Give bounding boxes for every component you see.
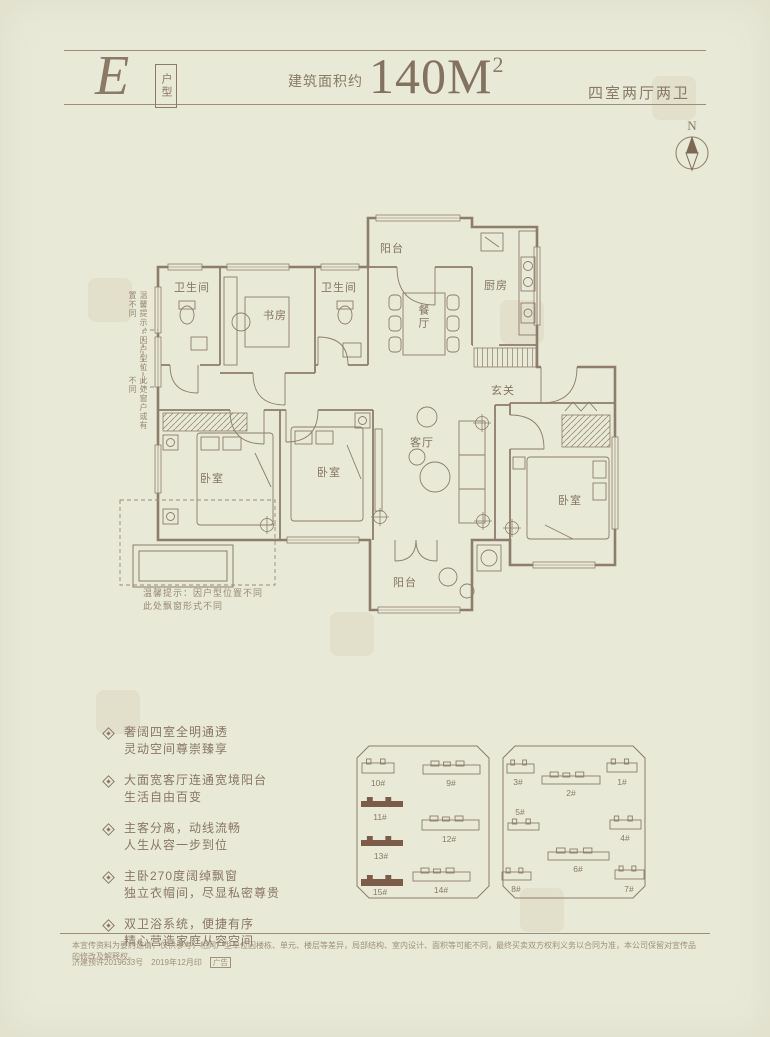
- room-label-balcony-top: 阳台: [380, 240, 404, 256]
- north-compass: N: [668, 116, 716, 181]
- ad-label-box: 广告: [210, 957, 231, 968]
- siteplan-building-8: 8#: [502, 868, 531, 894]
- area-group: 建筑面积约 140M 2: [288, 52, 503, 100]
- room-label-study: 书房: [263, 307, 287, 323]
- siteplan-building-label: 1#: [617, 777, 627, 787]
- corner-note-line2: 此处飘窗形式不同: [143, 600, 263, 613]
- diamond-bullet-icon: [103, 776, 112, 785]
- siteplan-building-11: 11#: [361, 797, 403, 822]
- footer-rule: [60, 933, 710, 934]
- feature-line: 灵动空间尊崇臻享: [124, 741, 228, 758]
- siteplan-building-label: 8#: [511, 884, 521, 894]
- siteplan-building-6: 6#: [548, 848, 609, 874]
- area-prefix: 建筑面积约: [288, 71, 363, 91]
- side-note-col2: 此处窗户或有不同: [127, 376, 149, 431]
- siteplan-building-7: 7#: [615, 866, 644, 894]
- siteplan-building-14: 14#: [413, 868, 470, 895]
- diamond-bullet-icon: [103, 920, 112, 929]
- floorplan-poster-page: E 户型 建筑面积约 140M 2 四室两厅两卫 N: [0, 0, 770, 1037]
- siteplan-building-label: 9#: [446, 778, 456, 788]
- room-label-bed1: 卧室: [200, 470, 224, 486]
- area-value: 140M: [369, 52, 492, 100]
- siteplan-west-drawing: 10#9#11#12#13#14#15#: [353, 742, 493, 902]
- room-label-dining: 餐厅: [415, 304, 431, 330]
- siteplan-building-12: 12#: [422, 816, 479, 844]
- feature-item: 奢阔四室全明通透 灵动空间尊崇臻享: [103, 724, 343, 758]
- siteplan-building-label: 14#: [434, 885, 448, 895]
- unit-letter: E: [95, 48, 129, 104]
- room-label-bed2: 卧室: [317, 464, 341, 480]
- side-note-col1: 温馨提示：因户型位置不同: [127, 291, 149, 374]
- diamond-bullet-icon: [103, 872, 112, 881]
- feature-line: 奢阔四室全明通透: [124, 724, 228, 741]
- room-label-bath2: 卫生间: [321, 279, 357, 295]
- permit-line: 济建预许2019633号 2019年12月印 广告: [72, 957, 231, 968]
- feature-line: 人生从容一步到位: [124, 837, 241, 854]
- room-label-bath1: 卫生间: [174, 279, 210, 295]
- feature-line: 大面宽客厅连通宽境阳台: [124, 772, 267, 789]
- room-label-kitchen: 厨房: [484, 277, 508, 293]
- diamond-bullet-icon: [103, 824, 112, 833]
- room-spec: 四室两厅两卫: [588, 82, 690, 103]
- compass-icon: N: [668, 116, 716, 176]
- siteplan-building-label: 12#: [442, 834, 456, 844]
- siteplan-building-10: 10#: [362, 759, 394, 788]
- diamond-bullet-icon: [103, 728, 112, 737]
- feature-list: 奢阔四室全明通透 灵动空间尊崇臻享 大面宽客厅连通宽境阳台 生活自由百变 主客分…: [103, 724, 343, 964]
- siteplan-building-3: 3#: [507, 760, 534, 787]
- unit-type-box: 户型: [155, 64, 177, 108]
- feature-line: 主卧270度阔绰飘窗: [124, 868, 280, 885]
- floorplan-drawing: [115, 195, 685, 625]
- compass-n-letter: N: [687, 118, 697, 133]
- feature-line: 独立衣帽间，尽显私密尊贵: [124, 885, 280, 902]
- feature-line: 生活自由百变: [124, 789, 267, 806]
- siteplan-block-east: 3#2#1#5#4#6#8#7#: [497, 742, 649, 907]
- siteplan-building-label: 6#: [573, 864, 583, 874]
- room-label-balcony-bottom: 阳台: [393, 574, 417, 590]
- siteplan-building-label: 3#: [513, 777, 523, 787]
- permit-number: 济建预许2019633号: [72, 957, 143, 968]
- print-date: 2019年12月印: [151, 957, 202, 968]
- siteplan-building-label: 11#: [373, 812, 387, 822]
- siteplan-building-13: 13#: [361, 836, 403, 861]
- siteplan-building-label: 2#: [566, 788, 576, 798]
- unit-type-label: 户型: [158, 73, 174, 99]
- feature-line: 双卫浴系统，便捷有序: [124, 916, 254, 933]
- room-label-foyer: 玄关: [491, 382, 515, 398]
- corner-note: 温馨提示：因户型位置不同 此处飘窗形式不同: [143, 587, 263, 613]
- siteplan-building-1: 1#: [607, 759, 637, 787]
- siteplan-building-label: 10#: [371, 778, 385, 788]
- room-label-bed3: 卧室: [558, 492, 582, 508]
- siteplan-building-label: 13#: [374, 851, 388, 861]
- side-note: 温馨提示：因户型位置不同 此处窗户或有不同: [127, 291, 149, 431]
- siteplan-building-label: 7#: [624, 884, 634, 894]
- siteplan-building-label: 5#: [515, 807, 525, 817]
- corner-note-line1: 温馨提示：因户型位置不同: [143, 587, 263, 600]
- room-label-living: 客厅: [410, 434, 434, 450]
- siteplan-building-2: 2#: [542, 772, 600, 798]
- feature-item: 主客分离，动线流畅 人生从容一步到位: [103, 820, 343, 854]
- siteplan-building-label: 4#: [620, 833, 630, 843]
- siteplan-block-west: 10#9#11#12#13#14#15#: [353, 742, 493, 907]
- feature-line: 主客分离，动线流畅: [124, 820, 241, 837]
- siteplan-building-5: 5#: [508, 807, 539, 830]
- floorplan: 卫生间 书房 卫生间 阳台 餐厅 厨房 玄关 客厅 卧室 卧室 卧室 阳台 温馨…: [115, 195, 685, 625]
- siteplan-building-15: 15#: [361, 875, 403, 897]
- siteplan-building-4: 4#: [610, 816, 641, 843]
- area-superscript: 2: [492, 54, 503, 76]
- feature-item: 大面宽客厅连通宽境阳台 生活自由百变: [103, 772, 343, 806]
- feature-item: 主卧270度阔绰飘窗 独立衣帽间，尽显私密尊贵: [103, 868, 343, 902]
- siteplan-east-drawing: 3#2#1#5#4#6#8#7#: [497, 742, 649, 902]
- siteplan-building-label: 15#: [373, 887, 387, 897]
- siteplan-building-9: 9#: [423, 761, 480, 788]
